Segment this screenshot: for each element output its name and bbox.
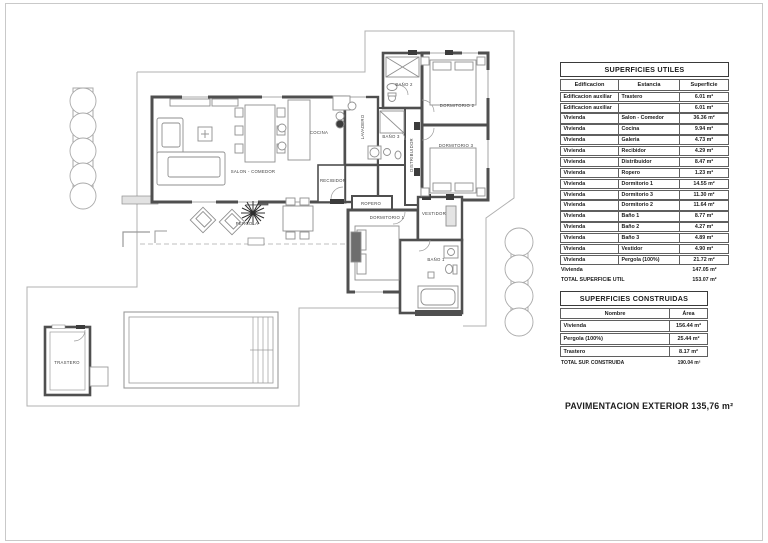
room-label-cocina: COCINA bbox=[310, 130, 328, 135]
superficies-construidas-body: Vivienda156.44 m²Pergola (100%)25.44 m²T… bbox=[560, 320, 708, 357]
column-header: Edificacion bbox=[560, 79, 619, 92]
table-cell: Vivienda bbox=[560, 320, 670, 332]
table-cell: 156.44 m² bbox=[670, 320, 708, 332]
pool bbox=[124, 312, 278, 388]
table-cell: Vivienda bbox=[560, 233, 619, 243]
table-title: SUPERFICIES UTILES bbox=[560, 62, 729, 77]
table-cell: Vivienda bbox=[560, 179, 619, 189]
table-row: ViviendaRopero1.23 m² bbox=[560, 168, 729, 178]
table-cell: Pergola (100%) bbox=[560, 333, 670, 345]
table-cell: Edificacion auxiliar bbox=[560, 92, 619, 102]
table-row: Trastero8.17 m² bbox=[560, 346, 708, 358]
table-cell: 11.64 m² bbox=[680, 200, 729, 210]
table-cell: 4.29 m² bbox=[680, 146, 729, 156]
total-label: TOTAL SUP. CONSTRUIDA bbox=[560, 359, 670, 368]
table-row: ViviendaCocina9.94 m² bbox=[560, 124, 729, 134]
table-cell: Baño 2 bbox=[619, 222, 680, 232]
table-row: ViviendaDormitorio 114.55 m² bbox=[560, 179, 729, 189]
room-label-pergola: PERGOLA bbox=[236, 221, 259, 226]
room-label-lavadero: LAVADERO bbox=[360, 114, 365, 139]
room-label-recibidor: RECIBIDOR bbox=[320, 178, 346, 183]
table-cell: Dormitorio 1 bbox=[619, 179, 680, 189]
table-row: ViviendaDormitorio 211.64 m² bbox=[560, 200, 729, 210]
table-cell: Baño 3 bbox=[619, 233, 680, 243]
table-cell bbox=[619, 103, 680, 113]
right-planter bbox=[505, 228, 533, 336]
total-label: TOTAL SUPERFICIE UTIL bbox=[560, 276, 680, 285]
column-header: Estancia bbox=[619, 79, 680, 92]
table-header-row: Edificacion Estancia Superficie bbox=[560, 79, 729, 92]
superficies-utiles-table: SUPERFICIES UTILES Edificacion Estancia … bbox=[560, 62, 729, 284]
table-cell: Dormitorio 3 bbox=[619, 190, 680, 200]
total-value: 190.04 m² bbox=[670, 359, 708, 368]
column-header: Nombre bbox=[560, 308, 670, 320]
table-cell: Vivienda bbox=[560, 211, 619, 221]
table-cell: Vivienda bbox=[560, 168, 619, 178]
table-cell: 8.47 m² bbox=[680, 157, 729, 167]
table-cell: 4.27 m² bbox=[680, 222, 729, 232]
table-cell: 8.77 m² bbox=[680, 211, 729, 221]
table-row: ViviendaBaño 24.27 m² bbox=[560, 222, 729, 232]
superficies-construidas-table: SUPERFICIES CONSTRUIDAS Nombre Área Vivi… bbox=[560, 291, 708, 367]
table-cell: 11.30 m² bbox=[680, 190, 729, 200]
table-cell: Salon - Comedor bbox=[619, 113, 680, 123]
room-label-salon: SALON - COMEDOR bbox=[231, 169, 276, 174]
table-cell: Vivienda bbox=[560, 190, 619, 200]
total-value: 153.07 m² bbox=[680, 276, 729, 285]
table-cell: Vivienda bbox=[560, 146, 619, 156]
table-row: ViviendaBaño 18.77 m² bbox=[560, 211, 729, 221]
table-cell: 4.89 m² bbox=[680, 233, 729, 243]
table-row: ViviendaPergola (100%)21.72 m² bbox=[560, 255, 729, 265]
room-label-vestidor: VESTIDOR bbox=[422, 211, 446, 216]
table-cell: Baño 1 bbox=[619, 211, 680, 221]
table-cell: Distribuidor bbox=[619, 157, 680, 167]
room-label-dormitorio3: DORMITORIO 3 bbox=[439, 143, 474, 148]
table-row: Edificacion auxiliarTrastero6.01 m² bbox=[560, 92, 729, 102]
subtotal-row: Vivienda 147.05 m² bbox=[560, 266, 729, 275]
table-cell: Vestidor bbox=[619, 244, 680, 254]
room-label-dormitorio2: DORMITORIO 2 bbox=[440, 103, 475, 108]
subtotal-label: Vivienda bbox=[560, 266, 680, 275]
column-header: Superficie bbox=[680, 79, 729, 92]
table-cell: Pergola (100%) bbox=[619, 255, 680, 265]
room-label-dormitorio1: DORMITORIO 1 bbox=[370, 215, 405, 220]
superficies-utiles-body: Edificacion auxiliarTrastero6.01 m²Edifi… bbox=[560, 92, 729, 265]
table-cell: 4.90 m² bbox=[680, 244, 729, 254]
table-row: Pergola (100%)25.44 m² bbox=[560, 333, 708, 345]
room-label-bano1: BAÑO 1 bbox=[427, 257, 445, 262]
table-cell: 6.01 m² bbox=[680, 92, 729, 102]
total-row: TOTAL SUPERFICIE UTIL 153.07 m² bbox=[560, 276, 729, 285]
table-cell: Cocina bbox=[619, 124, 680, 134]
table-cell: Recibidor bbox=[619, 146, 680, 156]
table-cell: Vivienda bbox=[560, 200, 619, 210]
table-cell: Vivienda bbox=[560, 124, 619, 134]
room-label-distribuidor: DISTRIBUIDOR bbox=[409, 138, 414, 172]
dark-wall-band bbox=[415, 310, 462, 316]
room-label-trastero: TRASTERO bbox=[54, 360, 80, 365]
room-label-bano2: BAÑO 2 bbox=[395, 82, 413, 87]
table-cell: 14.55 m² bbox=[680, 179, 729, 189]
room-label-ropero: ROPERO bbox=[361, 201, 382, 206]
table-cell: 25.44 m² bbox=[670, 333, 708, 345]
table-cell: Ropero bbox=[619, 168, 680, 178]
table-title: SUPERFICIES CONSTRUIDAS bbox=[560, 291, 708, 306]
table-cell: 9.94 m² bbox=[680, 124, 729, 134]
table-row: ViviendaGaleria4.73 m² bbox=[560, 135, 729, 145]
table-cell: Edificacion auxiliar bbox=[560, 103, 619, 113]
table-cell: Vivienda bbox=[560, 157, 619, 167]
table-cell: 6.01 m² bbox=[680, 103, 729, 113]
table-cell: 1.23 m² bbox=[680, 168, 729, 178]
total-row: TOTAL SUP. CONSTRUIDA 190.04 m² bbox=[560, 359, 708, 368]
table-row: ViviendaVestidor4.90 m² bbox=[560, 244, 729, 254]
table-row: ViviendaDormitorio 311.30 m² bbox=[560, 190, 729, 200]
table-row: Vivienda156.44 m² bbox=[560, 320, 708, 332]
table-cell: 21.72 m² bbox=[680, 255, 729, 265]
table-cell: Trastero bbox=[560, 346, 670, 358]
table-row: ViviendaDistribuidor8.47 m² bbox=[560, 157, 729, 167]
table-cell: Trastero bbox=[619, 92, 680, 102]
table-row: ViviendaBaño 34.89 m² bbox=[560, 233, 729, 243]
table-header-row: Nombre Área bbox=[560, 308, 708, 320]
subtotal-value: 147.05 m² bbox=[680, 266, 729, 275]
table-row: Edificacion auxiliar6.01 m² bbox=[560, 103, 729, 113]
table-cell: Vivienda bbox=[560, 135, 619, 145]
pavimentacion-note: PAVIMENTACION EXTERIOR 135,76 m² bbox=[565, 401, 765, 411]
table-cell: 8.17 m² bbox=[670, 346, 708, 358]
table-cell: Dormitorio 2 bbox=[619, 200, 680, 210]
table-cell: Galeria bbox=[619, 135, 680, 145]
table-row: ViviendaRecibidor4.29 m² bbox=[560, 146, 729, 156]
left-planter bbox=[70, 88, 96, 209]
table-cell: Vivienda bbox=[560, 255, 619, 265]
table-cell: 36.36 m² bbox=[680, 113, 729, 123]
room-label-bano3: BAÑO 3 bbox=[382, 134, 400, 139]
table-cell: Vivienda bbox=[560, 222, 619, 232]
table-cell: Vivienda bbox=[560, 113, 619, 123]
table-row: ViviendaSalon - Comedor36.36 m² bbox=[560, 113, 729, 123]
table-cell: Vivienda bbox=[560, 244, 619, 254]
column-header: Área bbox=[670, 308, 708, 320]
table-cell: 4.73 m² bbox=[680, 135, 729, 145]
